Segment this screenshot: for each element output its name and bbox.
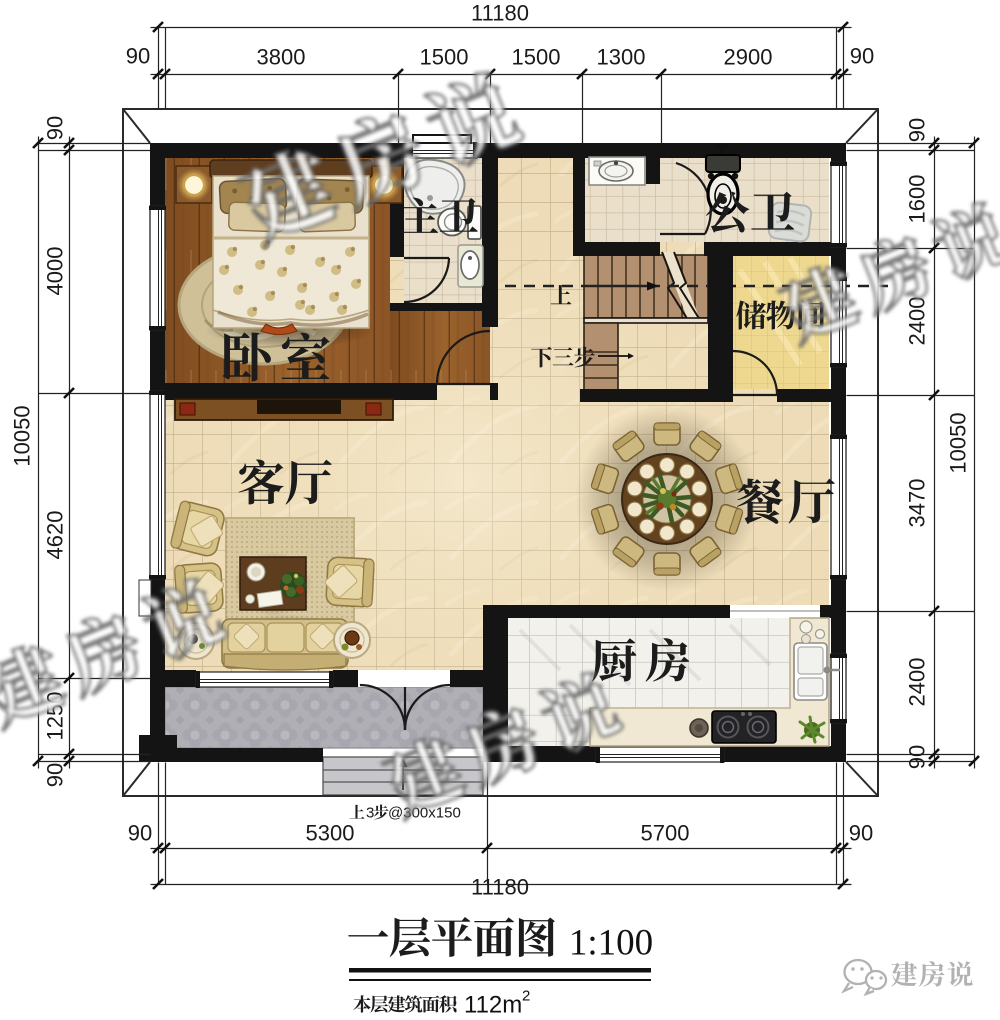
svg-text:2: 2 xyxy=(522,988,530,1005)
svg-text:90: 90 xyxy=(849,821,873,846)
svg-text:4620: 4620 xyxy=(43,511,68,560)
svg-text:2900: 2900 xyxy=(724,45,773,70)
svg-text:3800: 3800 xyxy=(257,45,306,70)
svg-text:11180: 11180 xyxy=(471,1,529,26)
svg-text:90: 90 xyxy=(126,44,150,69)
svg-text:2400: 2400 xyxy=(905,658,930,707)
svg-text:1300: 1300 xyxy=(597,45,646,70)
svg-text:1500: 1500 xyxy=(512,45,561,70)
svg-text:90: 90 xyxy=(850,44,874,69)
svg-text:90: 90 xyxy=(43,763,68,787)
svg-text::: : xyxy=(452,995,458,1015)
svg-text:112m: 112m xyxy=(464,992,522,1019)
svg-text:10050: 10050 xyxy=(946,412,971,473)
svg-text:90: 90 xyxy=(43,116,68,140)
svg-text:3: 3 xyxy=(366,805,374,822)
svg-text:5300: 5300 xyxy=(306,821,355,846)
svg-text:90: 90 xyxy=(128,821,152,846)
svg-text:3470: 3470 xyxy=(905,479,930,528)
svg-text:2400: 2400 xyxy=(905,297,930,346)
svg-text:4000: 4000 xyxy=(43,247,68,296)
svg-text:11180: 11180 xyxy=(471,875,529,900)
svg-text:10050: 10050 xyxy=(10,405,35,466)
svg-text:1600: 1600 xyxy=(905,175,930,224)
svg-text:1:100: 1:100 xyxy=(569,923,653,964)
svg-text:1500: 1500 xyxy=(420,45,469,70)
svg-text:90: 90 xyxy=(905,118,930,142)
svg-text:90: 90 xyxy=(905,745,930,769)
svg-text:5700: 5700 xyxy=(641,821,690,846)
